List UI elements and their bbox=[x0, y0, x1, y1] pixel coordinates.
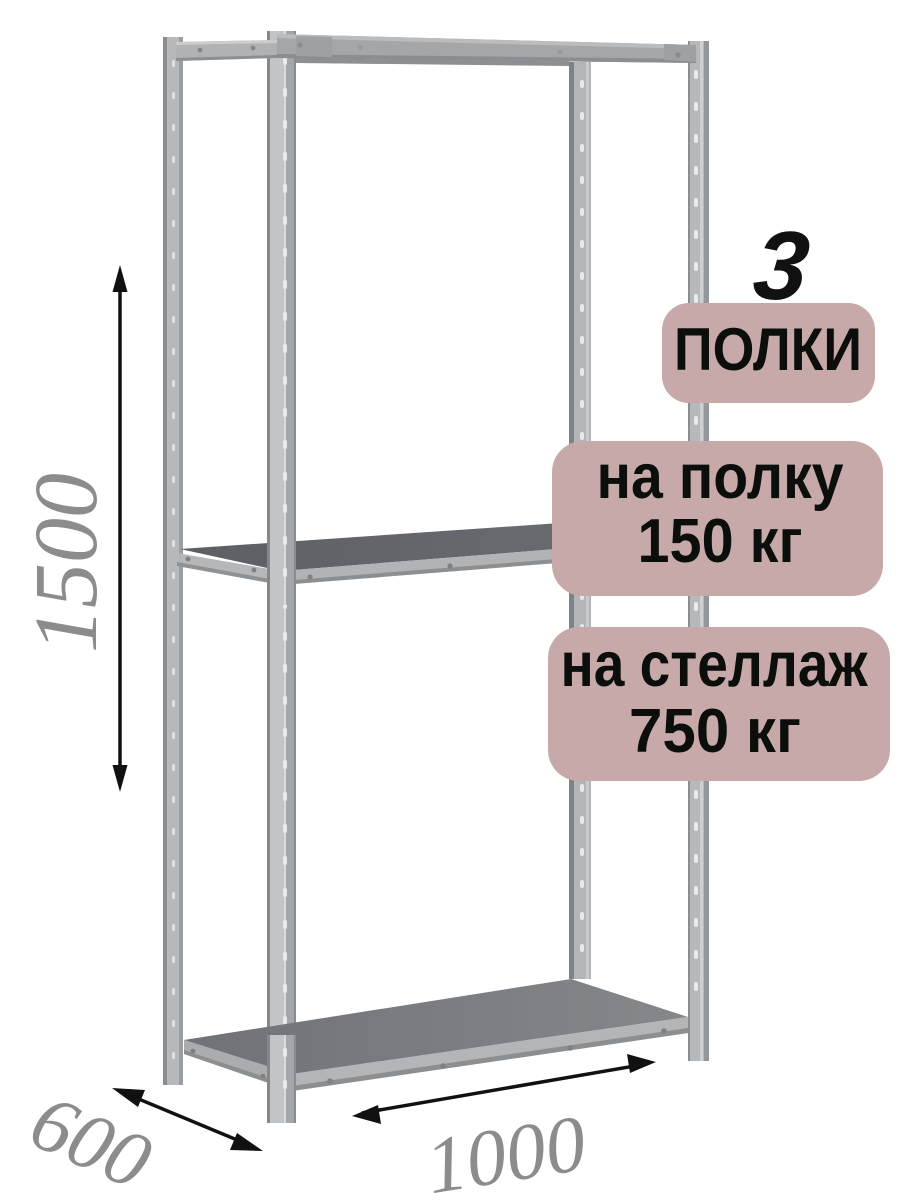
svg-text:на стеллаж: на стеллаж bbox=[561, 630, 869, 700]
svg-text:1500: 1500 bbox=[17, 473, 116, 653]
svg-text:ПОЛКИ: ПОЛКИ bbox=[674, 316, 862, 383]
svg-text:150 кг: 150 кг bbox=[638, 507, 803, 576]
svg-text:750 кг: 750 кг bbox=[629, 697, 801, 766]
svg-text:на полку: на полку bbox=[597, 442, 844, 512]
